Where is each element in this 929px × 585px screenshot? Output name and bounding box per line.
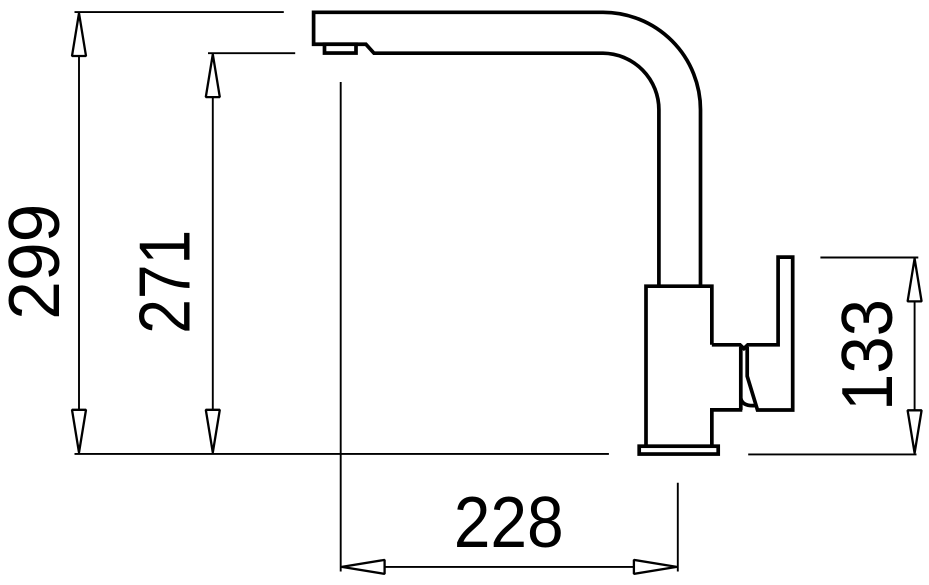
svg-text:271: 271 xyxy=(126,230,206,334)
svg-text:299: 299 xyxy=(0,204,75,320)
svg-text:228: 228 xyxy=(454,483,564,563)
svg-text:133: 133 xyxy=(828,299,908,411)
